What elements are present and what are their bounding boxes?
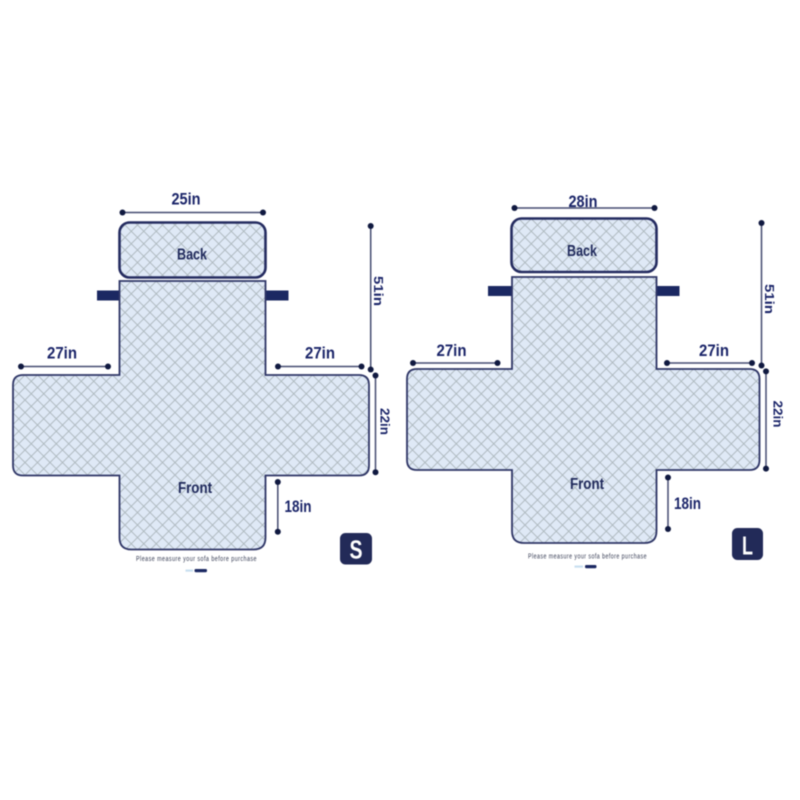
svg-text:22in: 22in: [771, 401, 786, 428]
svg-text:Front: Front: [178, 480, 213, 497]
svg-text:Front: Front: [570, 476, 605, 493]
svg-text:Back: Back: [567, 243, 597, 260]
svg-text:51in: 51in: [371, 276, 386, 306]
svg-text:18in: 18in: [285, 498, 312, 516]
svg-text:Back: Back: [177, 247, 207, 264]
svg-text:27in: 27in: [47, 345, 77, 363]
svg-text:27in: 27in: [437, 342, 467, 360]
svg-text:27in: 27in: [305, 345, 335, 363]
svg-text:Please measure your sofa befor: Please measure your sofa before purchase: [136, 556, 257, 563]
svg-text:18in: 18in: [674, 495, 701, 513]
svg-text:25in: 25in: [172, 191, 201, 209]
svg-text:22in: 22in: [378, 408, 393, 435]
svg-text:28in: 28in: [569, 193, 598, 211]
svg-text:27in: 27in: [699, 342, 729, 360]
svg-text:Please measure your sofa befor: Please measure your sofa before purchase: [528, 554, 647, 561]
svg-text:S: S: [350, 535, 363, 565]
svg-text:L: L: [742, 531, 753, 561]
svg-text:51in: 51in: [762, 284, 777, 314]
